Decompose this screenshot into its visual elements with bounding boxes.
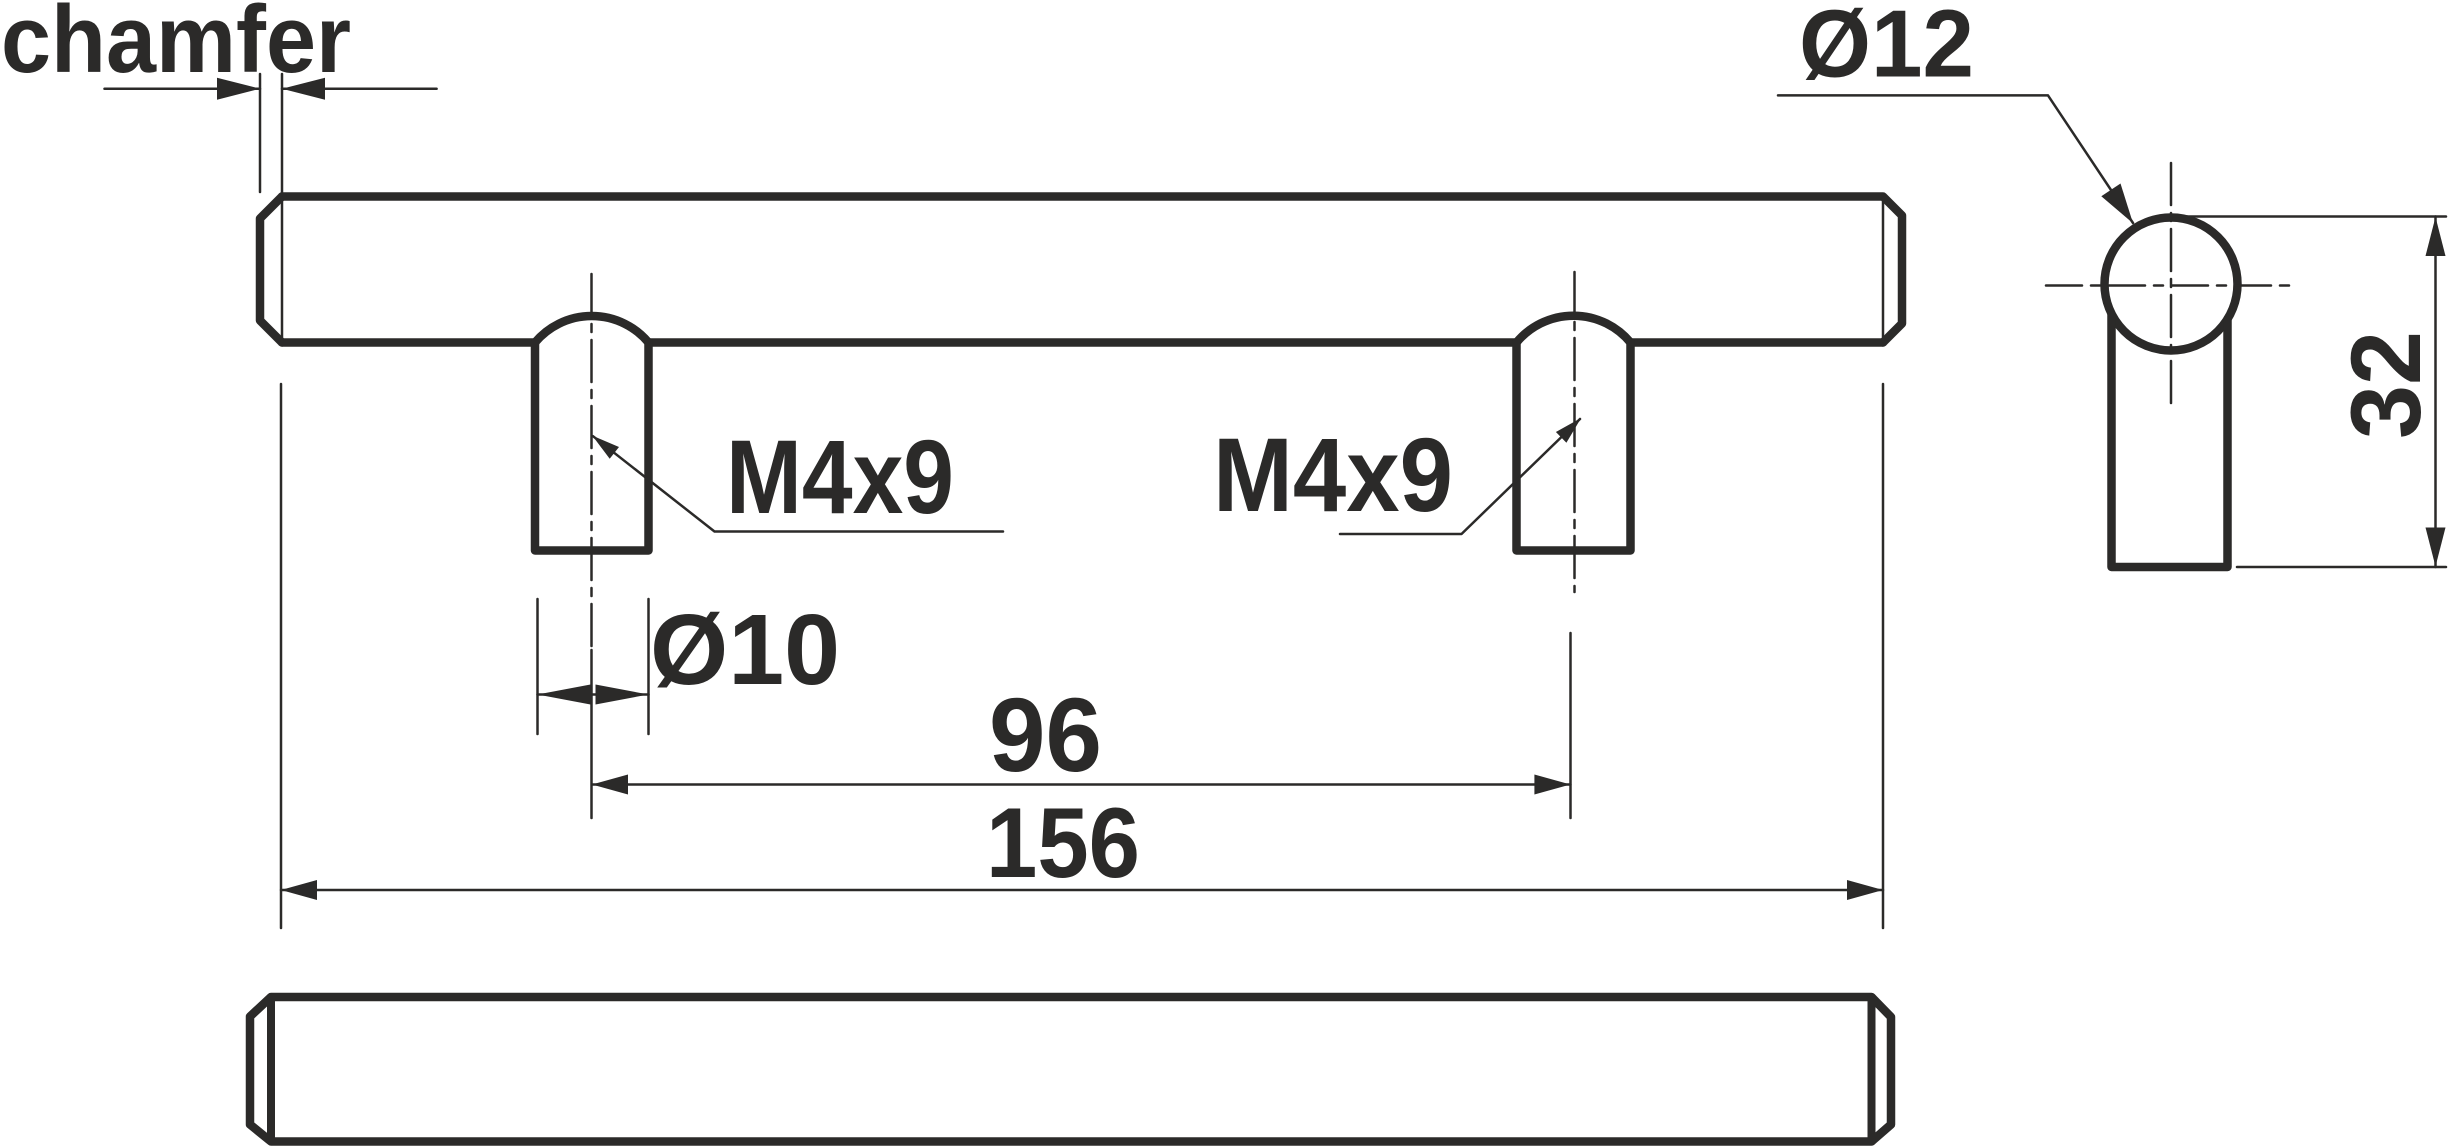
svg-text:Ø10: Ø10 [650, 594, 840, 706]
svg-text:96: 96 [989, 677, 1102, 794]
svg-text:32: 32 [2330, 331, 2441, 439]
svg-text:156: 156 [986, 787, 1140, 898]
svg-text:M4x9: M4x9 [726, 419, 954, 536]
svg-text:M4x9: M4x9 [1213, 417, 1453, 534]
svg-text:Ø12: Ø12 [1799, 0, 1974, 98]
svg-text:chamfer: chamfer [1, 0, 351, 93]
